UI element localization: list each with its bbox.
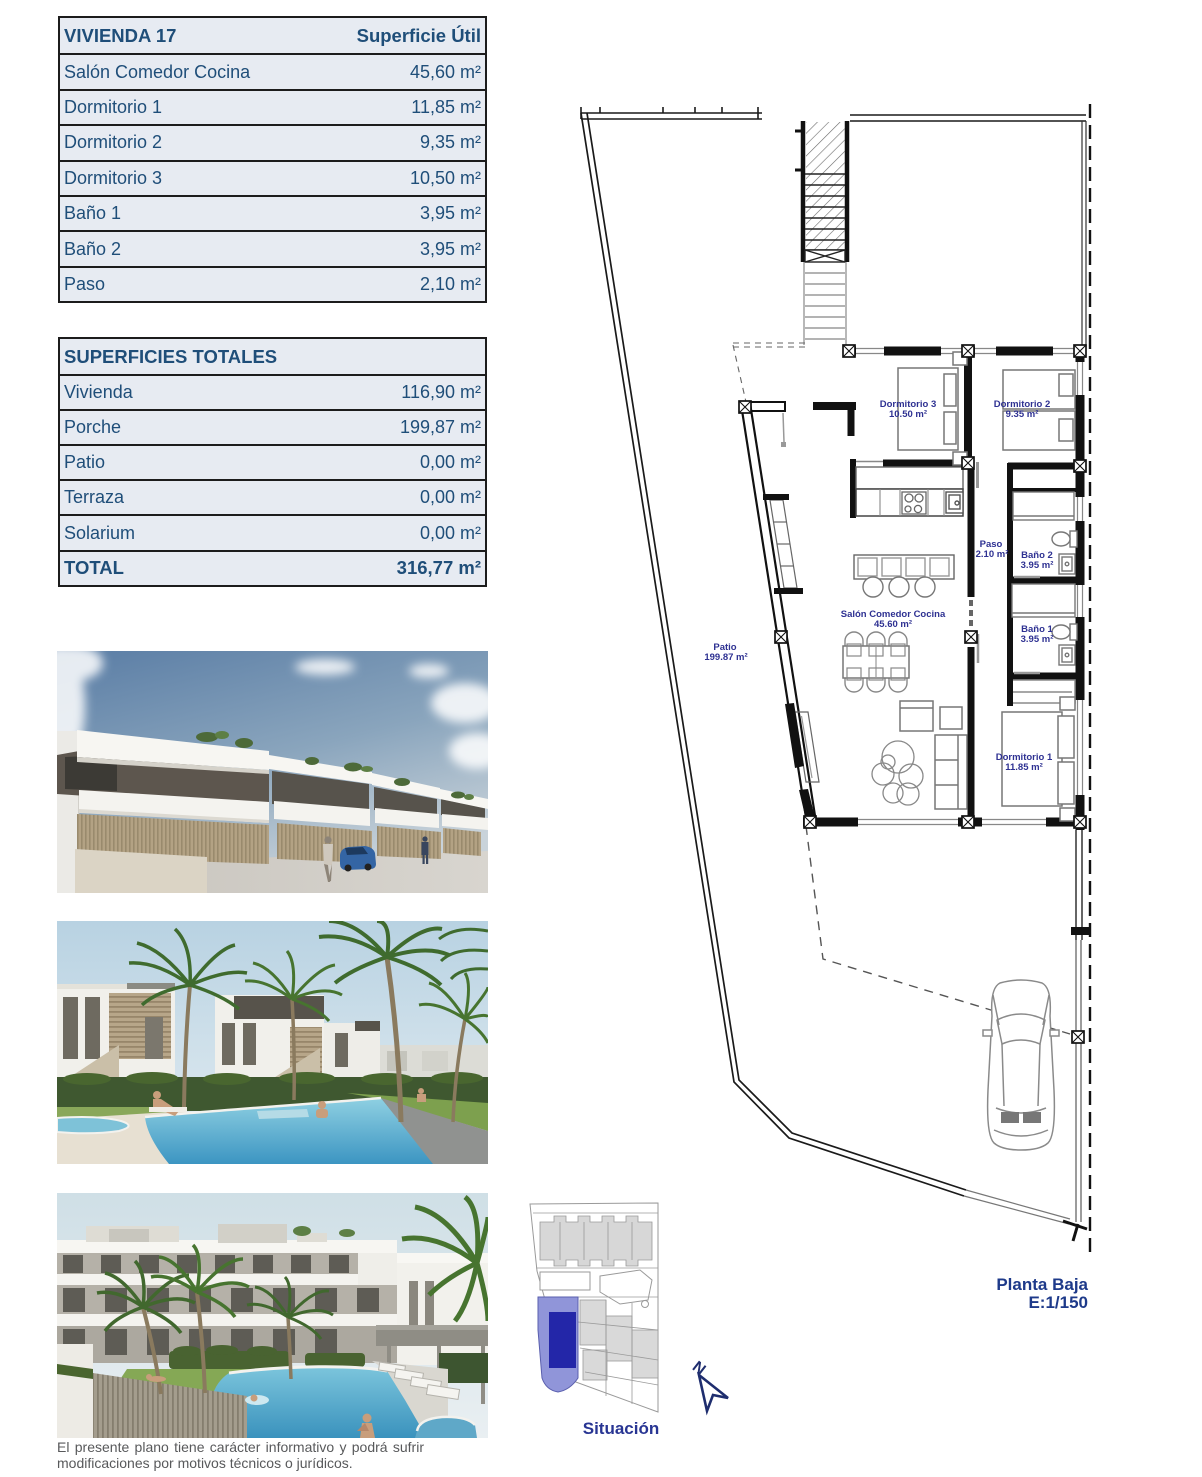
svg-text:Situación: Situación	[583, 1419, 660, 1438]
svg-text:E:1/150: E:1/150	[1028, 1293, 1088, 1312]
svg-text:199.87 m²: 199.87 m²	[704, 652, 747, 663]
svg-text:10.50 m²: 10.50 m²	[889, 409, 927, 420]
svg-text:2.10 m²: 2.10 m²	[976, 549, 1009, 560]
svg-text:11.85 m²: 11.85 m²	[1005, 762, 1043, 773]
svg-text:9.35 m²: 9.35 m²	[1006, 409, 1039, 420]
svg-text:N: N	[689, 1358, 709, 1379]
svg-text:45.60 m²: 45.60 m²	[874, 619, 912, 630]
svg-text:3.95 m²: 3.95 m²	[1021, 634, 1054, 645]
svg-text:Planta Baja: Planta Baja	[996, 1275, 1088, 1294]
svg-text:3.95 m²: 3.95 m²	[1021, 560, 1054, 571]
